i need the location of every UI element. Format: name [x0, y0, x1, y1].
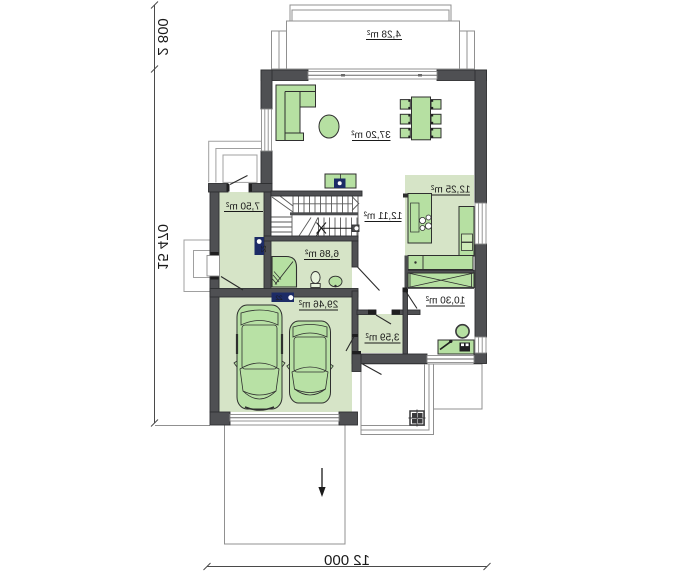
svg-text:37,20 m²: 37,20 m²: [351, 130, 391, 141]
svg-text:7,50 m²: 7,50 m²: [225, 202, 260, 213]
svg-text:2 800: 2 800: [154, 18, 171, 56]
svg-text:10,30 m²: 10,30 m²: [425, 296, 465, 307]
svg-text:12,25 m²: 12,25 m²: [430, 185, 470, 196]
svg-text:6,86 m²: 6,86 m²: [304, 249, 339, 260]
svg-text:12,11 m²: 12,11 m²: [363, 211, 402, 222]
svg-text:12 000: 12 000: [324, 552, 370, 569]
svg-text:4,28 m²: 4,28 m²: [366, 30, 401, 41]
svg-text:15 470: 15 470: [154, 224, 171, 270]
svg-text:3,59 m²: 3,59 m²: [365, 333, 400, 344]
svg-text:22: 22: [260, 245, 267, 253]
svg-text:22: 22: [275, 295, 283, 302]
svg-text:29,46 m²: 29,46 m²: [298, 300, 338, 311]
